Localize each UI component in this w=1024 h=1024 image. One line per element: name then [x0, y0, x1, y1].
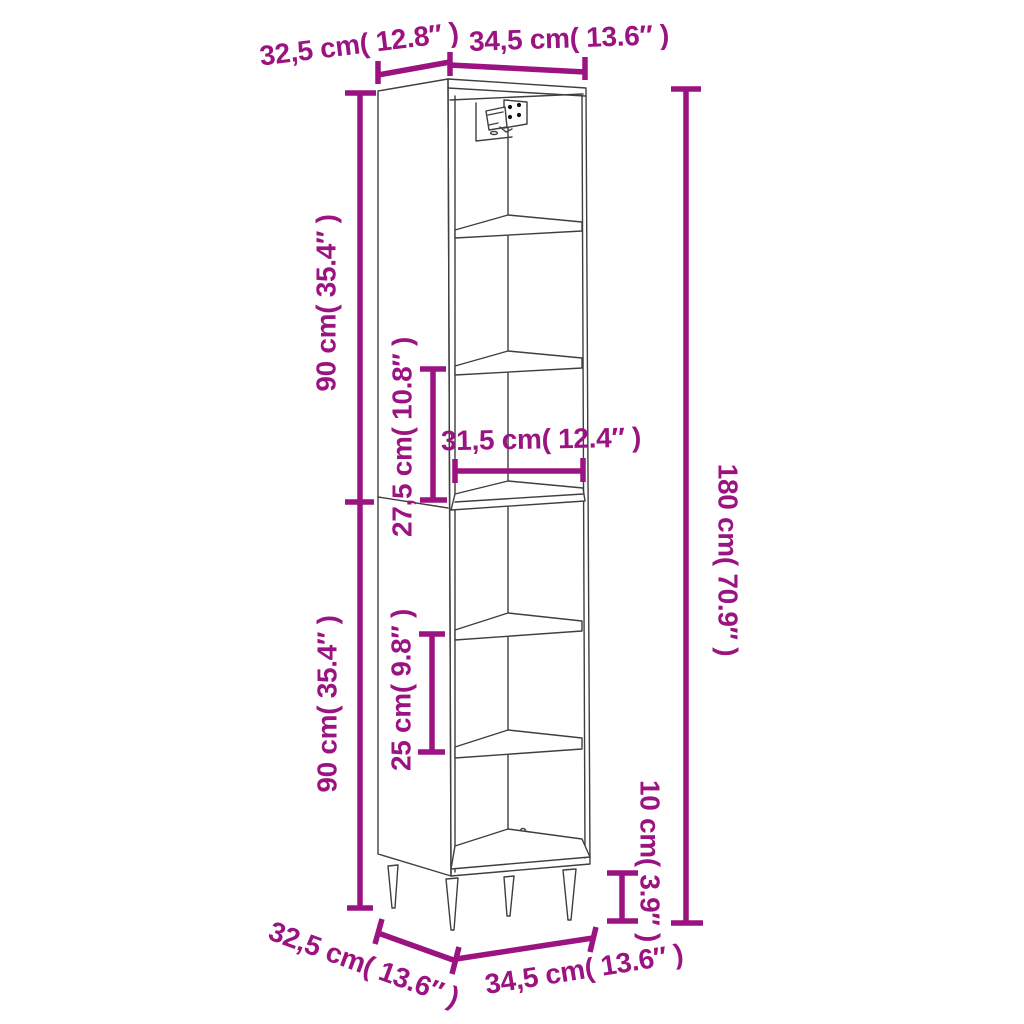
dim-inner-width-line: [455, 458, 583, 483]
label-bottom-width: 34,5 cm( 13.6″ ): [483, 938, 685, 1000]
leg-front-right: [563, 869, 576, 920]
label-top-width: 34,5 cm( 13.6″ ): [468, 19, 669, 57]
hinge-hardware: [476, 100, 527, 141]
dim-bottom-depth-line: [375, 919, 456, 961]
label-inner-width: 31,5 cm( 12.4″ ): [441, 422, 642, 456]
shelf-4: [455, 730, 582, 758]
diagram-svg: 32,5 cm( 12.8″ ) 34,5 cm( 13.6″ ) 90 cm(…: [0, 0, 1024, 1024]
label-upper-inner-height: 27,5 cm( 10.8″ ): [387, 337, 418, 537]
leg-back-center: [504, 876, 514, 916]
shelf-2: [455, 351, 582, 375]
dim-lower-inner-line: [418, 634, 445, 752]
bottom-panel: [451, 829, 590, 869]
cabinet-ceiling-edge: [450, 94, 583, 100]
label-upper-height: 90 cm( 35.4″ ): [311, 214, 342, 391]
dim-left-heights-line: [345, 93, 376, 908]
shelf-3: [455, 613, 582, 640]
label-lower-inner-height: 25 cm( 9.8″ ): [386, 609, 417, 771]
label-lower-height: 90 cm( 35.4″ ): [312, 615, 343, 792]
shelf-1: [455, 215, 582, 238]
leg-front-left: [446, 878, 458, 930]
dimension-diagram: 32,5 cm( 12.8″ ) 34,5 cm( 13.6″ ) 90 cm(…: [0, 0, 1024, 1024]
label-bottom-depth: 32,5 cm( 13.6″ ): [265, 915, 464, 1013]
label-total-height: 180 cm( 70.9″ ): [713, 464, 744, 657]
dim-total-height-line: [671, 89, 703, 923]
leg-back-left: [388, 865, 398, 908]
label-leg-height: 10 cm( 3.9″ ): [635, 780, 666, 942]
cabinet-legs: [388, 865, 576, 930]
dim-leg-height-line: [607, 873, 638, 921]
